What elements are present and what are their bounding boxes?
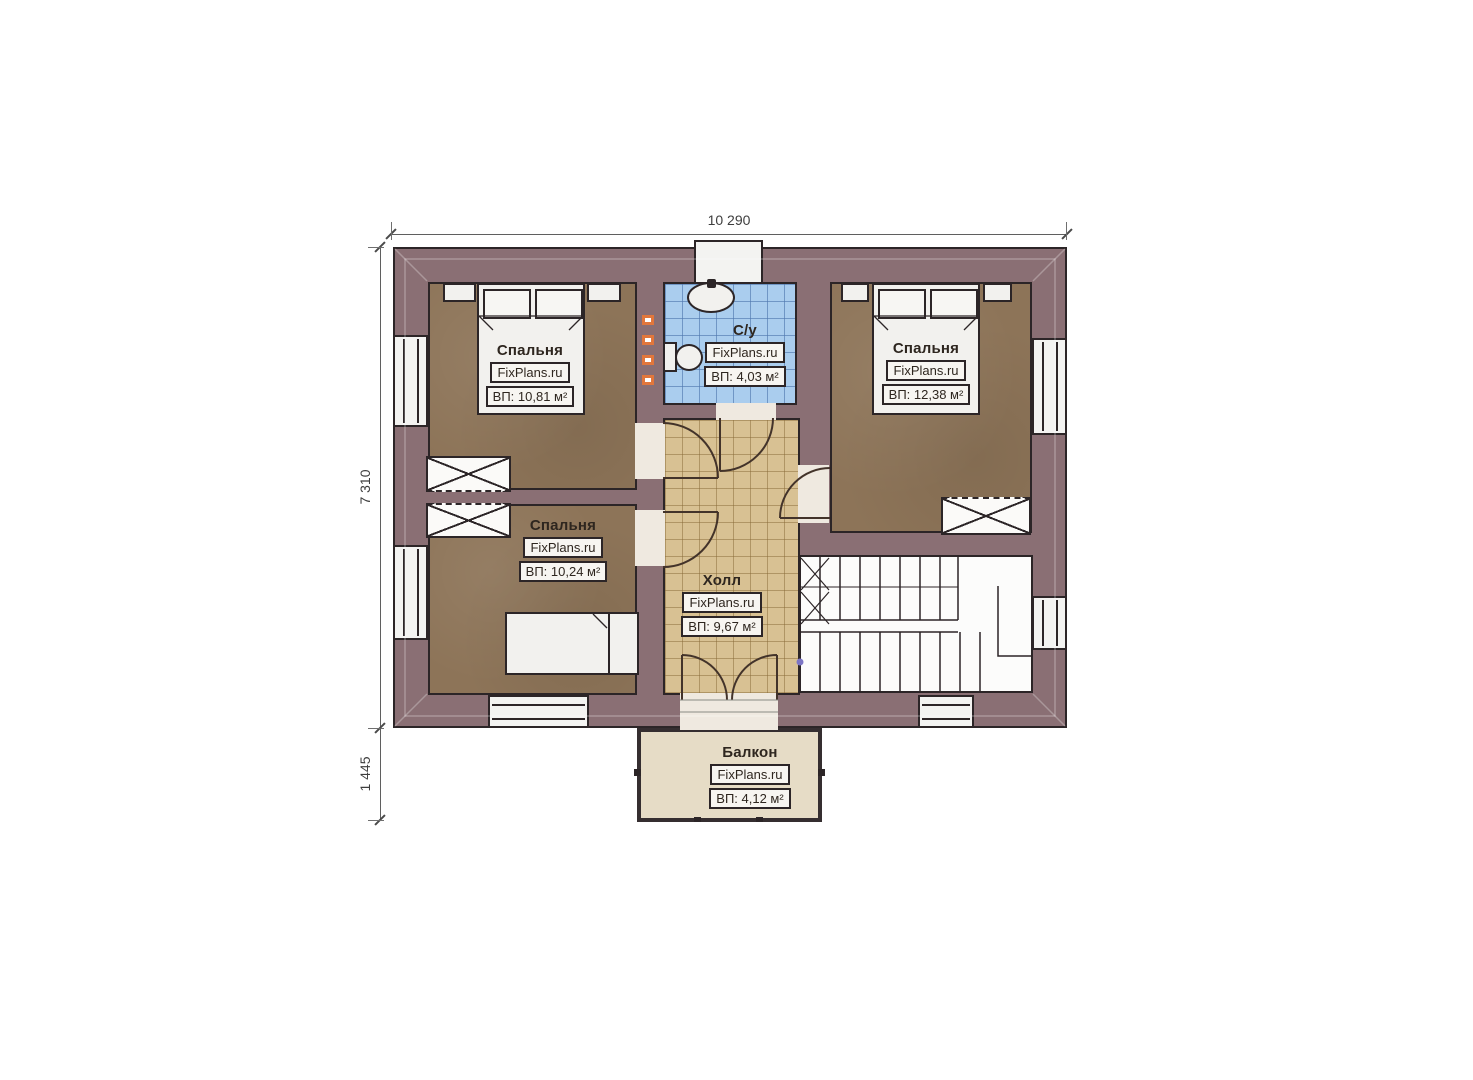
extension-line bbox=[1066, 222, 1067, 240]
room-name: Спальня bbox=[497, 342, 563, 359]
room-name: Спальня bbox=[530, 517, 596, 534]
towel-radiator-segment bbox=[642, 335, 654, 345]
nightstand bbox=[983, 283, 1012, 302]
nightstand bbox=[841, 283, 869, 302]
window-left-top bbox=[393, 335, 428, 427]
room-label-hall: Холл FixPlans.ru ВП: 9,67 м² bbox=[657, 572, 787, 637]
window-right-top bbox=[1032, 338, 1067, 435]
dimension-value: 10 290 bbox=[689, 212, 769, 228]
doorway-bedroom-right bbox=[798, 465, 829, 523]
towel-radiator-segment bbox=[642, 375, 654, 385]
window-left-bottom bbox=[393, 545, 428, 640]
window-frame bbox=[492, 704, 585, 720]
room-label-bedroom-right: Спальня FixPlans.ru ВП: 12,38 м² bbox=[861, 340, 991, 405]
area-box: ВП: 12,38 м² bbox=[882, 384, 971, 405]
extension-line bbox=[368, 247, 384, 248]
towel-radiator-segment bbox=[642, 315, 654, 325]
room-label-bathroom: С/у FixPlans.ru ВП: 4,03 м² bbox=[680, 322, 810, 387]
window-frame bbox=[922, 704, 970, 720]
extension-line bbox=[368, 820, 384, 821]
dimension-line bbox=[391, 234, 1067, 235]
balcony-post bbox=[756, 817, 763, 822]
extension-line bbox=[368, 728, 384, 729]
dimension-line bbox=[380, 728, 381, 820]
extension-line bbox=[391, 222, 392, 240]
room-label-bedroom-top-left: Спальня FixPlans.ru ВП: 10,81 м² bbox=[465, 342, 595, 407]
floor-plan-canvas: Спальня FixPlans.ru ВП: 10,81 м² С/у Fix… bbox=[0, 0, 1473, 1080]
area-box: ВП: 10,81 м² bbox=[486, 386, 575, 407]
hall-floor bbox=[663, 418, 800, 695]
window-frame bbox=[403, 549, 419, 636]
room-name: Балкон bbox=[722, 744, 777, 761]
pillow bbox=[483, 289, 531, 319]
dimension-line bbox=[380, 247, 381, 728]
watermark-box: FixPlans.ru bbox=[490, 362, 569, 383]
room-label-bedroom-bottom-left: Спальня FixPlans.ru ВП: 10,24 м² bbox=[498, 517, 628, 582]
area-box: ВП: 10,24 м² bbox=[519, 561, 608, 582]
bed-headboard bbox=[608, 614, 637, 673]
single-bed bbox=[505, 612, 639, 675]
room-name: С/у bbox=[733, 322, 757, 339]
pillow bbox=[930, 289, 978, 319]
window-bottom-left bbox=[488, 695, 589, 728]
balcony-post bbox=[694, 817, 701, 822]
area-box: ВП: 9,67 м² bbox=[681, 616, 762, 637]
window-frame bbox=[1042, 342, 1058, 431]
doorway-balcony bbox=[680, 693, 778, 730]
watermark-box: FixPlans.ru bbox=[682, 592, 761, 613]
towel-radiator-segment bbox=[642, 355, 654, 365]
area-box: ВП: 4,12 м² bbox=[709, 788, 790, 809]
doorway-bedroom-top-left bbox=[635, 423, 665, 479]
wardrobe bbox=[941, 497, 1031, 535]
dimension-value: 1 445 bbox=[357, 744, 373, 804]
room-name: Спальня bbox=[893, 340, 959, 357]
window-frame bbox=[403, 339, 419, 423]
doorway-bathroom bbox=[716, 403, 776, 420]
watermark-box: FixPlans.ru bbox=[523, 537, 602, 558]
room-name: Холл bbox=[703, 572, 741, 589]
window-bottom-right bbox=[918, 695, 974, 728]
faucet bbox=[707, 279, 716, 288]
pillow bbox=[878, 289, 926, 319]
wardrobe bbox=[426, 456, 511, 492]
watermark-box: FixPlans.ru bbox=[886, 360, 965, 381]
nightstand bbox=[587, 283, 621, 302]
area-box: ВП: 4,03 м² bbox=[704, 366, 785, 387]
window-frame bbox=[1042, 600, 1058, 646]
pillow bbox=[535, 289, 583, 319]
doorway-bedroom-bottom-left bbox=[635, 510, 665, 566]
dimension-value: 7 310 bbox=[357, 457, 373, 517]
watermark-box: FixPlans.ru bbox=[710, 764, 789, 785]
nightstand bbox=[443, 283, 476, 302]
balcony-post bbox=[818, 769, 825, 776]
balcony-post bbox=[634, 769, 641, 776]
chimney-shaft bbox=[694, 240, 763, 284]
watermark-box: FixPlans.ru bbox=[705, 342, 784, 363]
room-label-balcony: Балкон FixPlans.ru ВП: 4,12 м² bbox=[685, 744, 815, 809]
window-right-bottom bbox=[1032, 596, 1067, 650]
